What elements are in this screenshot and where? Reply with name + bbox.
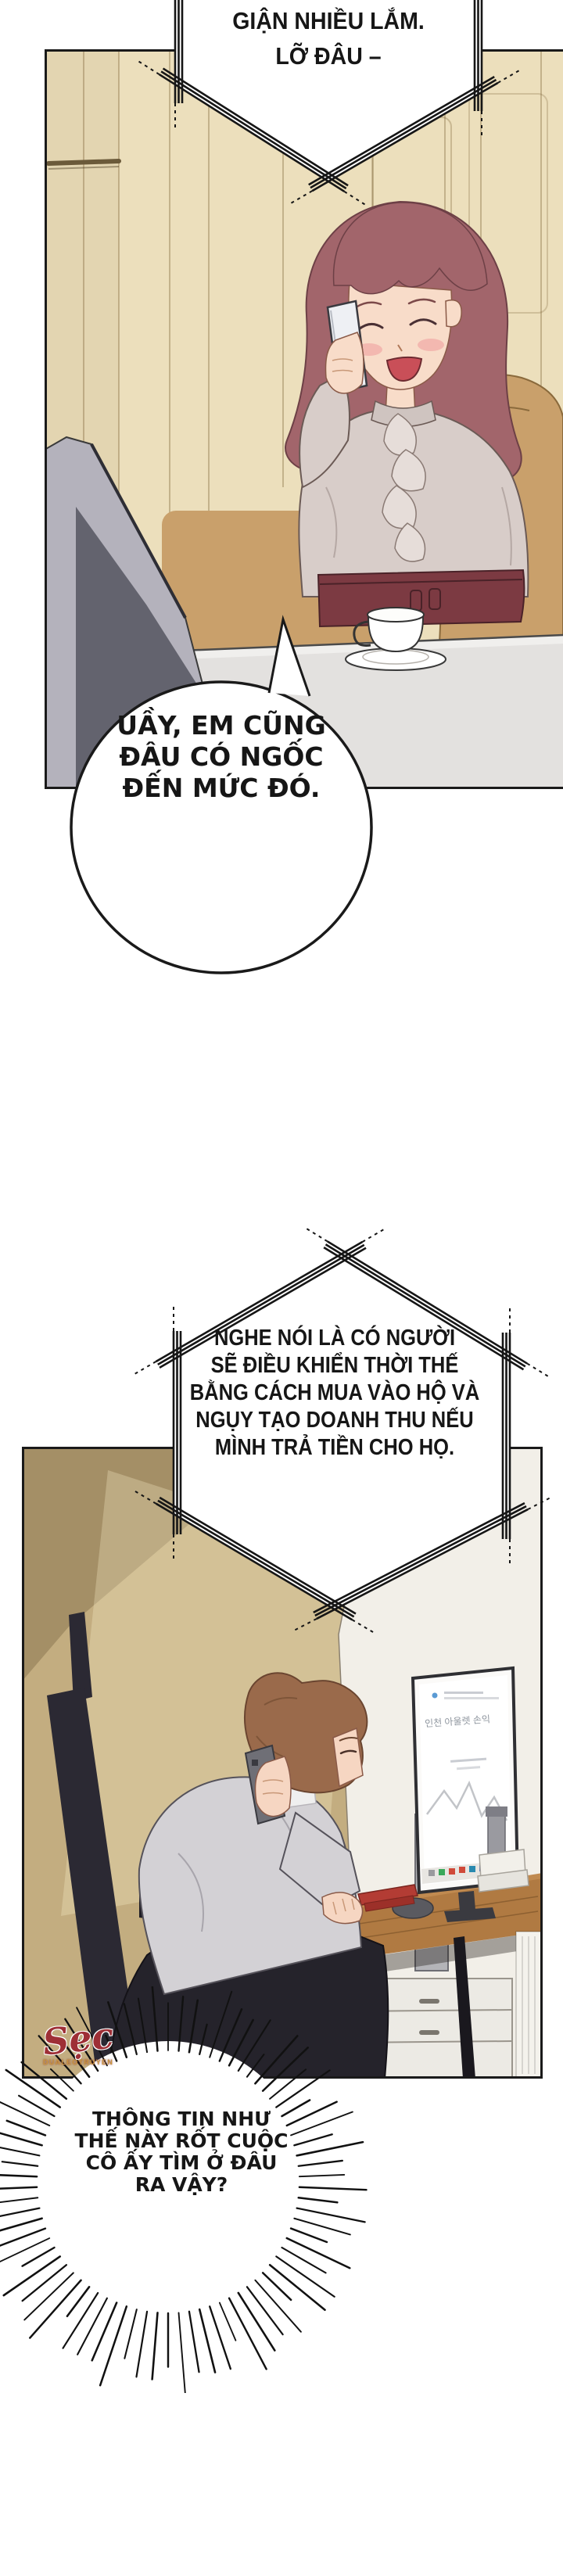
blush-right — [418, 339, 444, 351]
speech-line: NGỤY TẠO DOANH THU NẾU — [195, 1407, 473, 1434]
speech-line: RA VẬY? — [135, 2174, 228, 2196]
speech-line: CÔ ẤY TÌM Ở ĐÂU — [86, 2152, 278, 2174]
speech-text-top: GIẬN NHIỀU LẮM. LỠ ĐÂU – — [142, 3, 515, 74]
radiator — [516, 1932, 543, 2079]
speech-line: LỠ ĐÂU – — [275, 38, 381, 74]
speech-bubble-top: GIẬN NHIỀU LẮM. LỠ ĐÂU – — [102, 0, 532, 211]
speech-line: BẰNG CÁCH MUA VÀO HỘ VÀ — [190, 1379, 480, 1407]
thought-text-burst: THÔNG TIN NHƯ THẾ NÀY RỐT CUỘC CÔ ẤY TÌM… — [13, 2108, 350, 2196]
speech-bubble-ellipse: UẦY, EM CŨNG ĐÂU CÓ NGỐC ĐẾN MỨC ĐÓ. — [63, 602, 383, 978]
woman-ear — [446, 300, 461, 327]
speech-line: THẾ NÀY RỐT CUỘC — [75, 2130, 289, 2152]
speech-line: SẼ ĐIỀU KHIỂN THỜI THẾ — [211, 1352, 459, 1379]
speech-line: NGHE NÓI LÀ CÓ NGƯỜI — [214, 1325, 455, 1352]
speech-bubble-middle: NGHE NÓI LÀ CÓ NGƯỜI SẼ ĐIỀU KHIỂN THỜI … — [117, 1204, 563, 1658]
translator-watermark: Sẹc DUALEOTRUYEN — [23, 2021, 133, 2066]
screen-app-icon — [432, 1693, 438, 1699]
speech-line: MÌNH TRẢ TIỀN CHO HỌ. — [215, 1434, 454, 1462]
watermark-logo: Sẹc — [22, 2015, 134, 2062]
tumbler — [488, 1814, 505, 1855]
speech-line: ĐẾN MỨC ĐÓ. — [123, 773, 321, 804]
speech-text-ellipse: UẦY, EM CŨNG ĐÂU CÓ NGỐC ĐẾN MỨC ĐÓ. — [63, 710, 380, 804]
bubble-tail — [269, 619, 310, 696]
woman — [285, 202, 528, 626]
tumbler-lid — [486, 1806, 507, 1817]
speech-text-middle: NGHE NÓI LÀ CÓ NGƯỜI SẼ ĐIỀU KHIỂN THỜI … — [143, 1325, 525, 1462]
comic-page: GIẬN NHIỀU LẮM. LỠ ĐÂU – UẦY, EM CŨNG ĐÂ… — [0, 0, 563, 2576]
speech-line: ĐÂU CÓ NGỐC — [119, 741, 323, 773]
speech-line: UẦY, EM CŨNG — [117, 710, 325, 741]
speech-line: GIẬN NHIỀU LẮM. — [232, 3, 425, 38]
speech-line: THÔNG TIN NHƯ — [92, 2108, 271, 2130]
